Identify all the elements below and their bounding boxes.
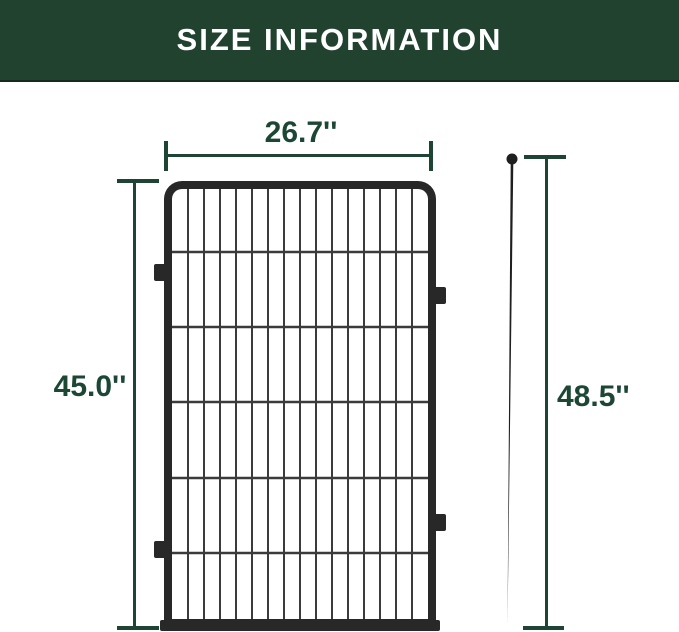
stake-line-bottom-tick (523, 626, 564, 630)
width-line-right-tick (429, 141, 433, 171)
height-line-bottom-tick (117, 626, 159, 630)
panel-height-label: 45.0'' (45, 372, 135, 402)
panel-height-dimension-line (133, 181, 136, 629)
fence-connector-tab-right-lower (434, 514, 446, 531)
ground-stake (498, 149, 524, 632)
fence-panel (164, 181, 436, 631)
fence-grid (172, 189, 428, 619)
fence-connector-tab-left-upper (154, 264, 166, 281)
fence-connector-tab-left-lower (154, 541, 166, 558)
panel-width-dimension-line (166, 154, 432, 157)
size-information-infographic: SIZE INFORMATION 26.7'' 45.0'' 48.5'' (0, 0, 679, 632)
height-line-top-tick (117, 179, 159, 183)
fence-bottom-rail (160, 620, 440, 631)
stake-shaft (508, 163, 514, 627)
stake-line-top-tick (524, 155, 566, 159)
panel-width-label: 26.7'' (241, 118, 361, 148)
stake-height-dimension-line (545, 157, 548, 629)
stake-height-label: 48.5'' (557, 382, 630, 412)
width-line-left-tick (164, 141, 168, 171)
header-band: SIZE INFORMATION (0, 0, 679, 82)
page-title: SIZE INFORMATION (177, 22, 503, 58)
fence-connector-tab-right-upper (434, 287, 446, 304)
stake-ball-top (507, 154, 518, 165)
